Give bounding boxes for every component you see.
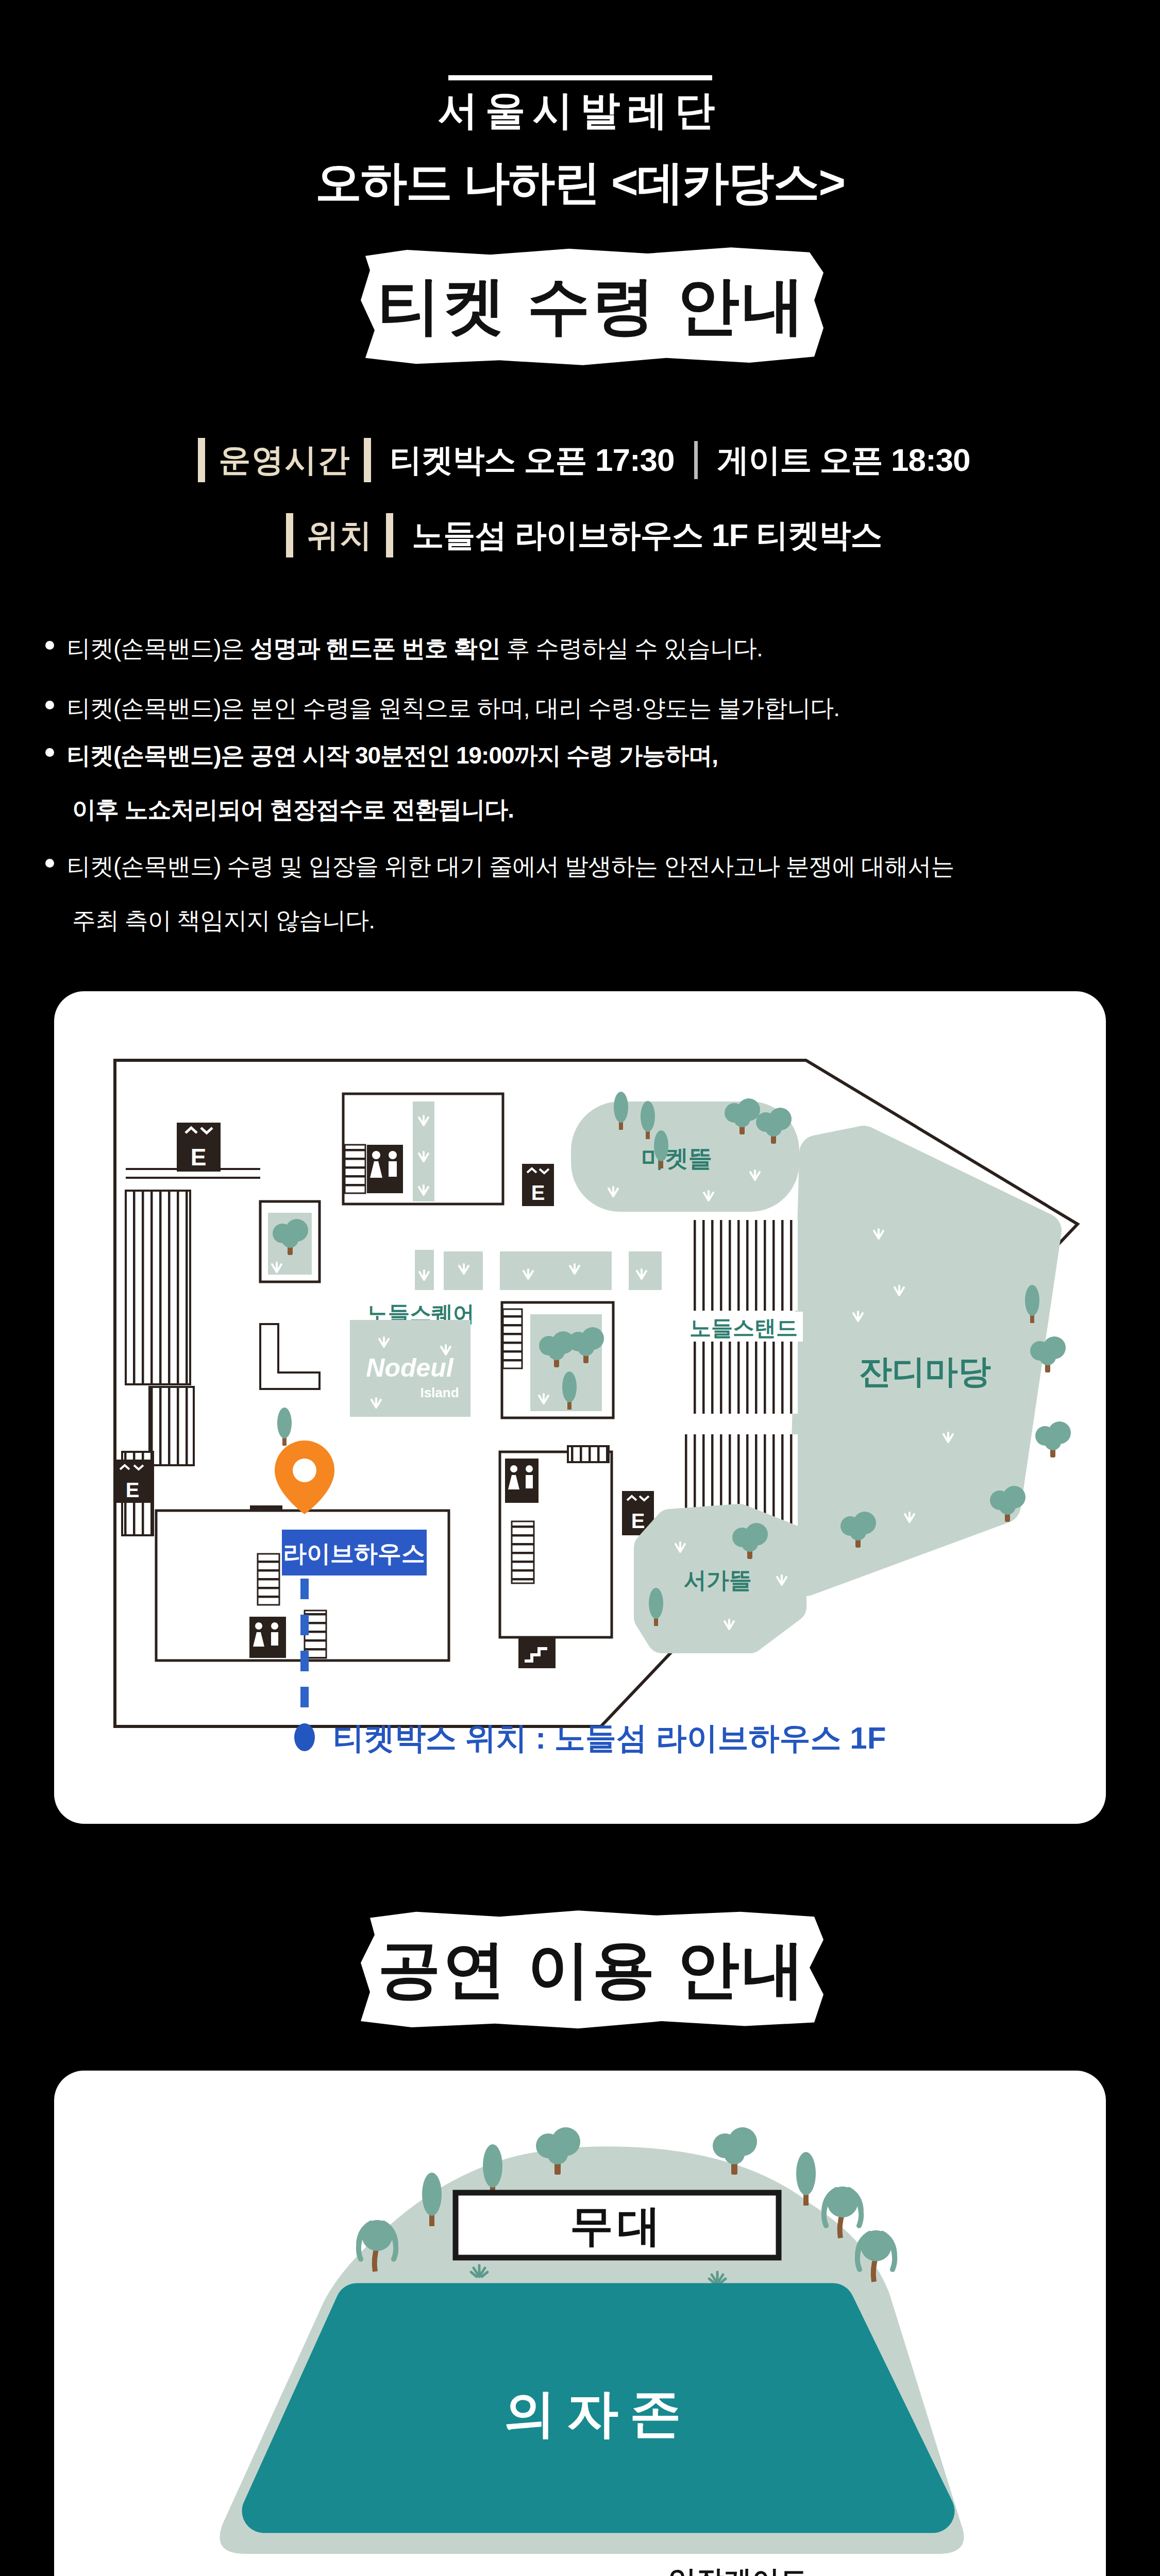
gate-label: 입장게이트 [668, 2565, 808, 2576]
building-outline [343, 1094, 503, 1204]
svg-text:Nodeul: Nodeul [366, 1353, 454, 1382]
location-value: 노들섬 라이브하우스 1F 티켓박스 [412, 514, 882, 557]
elevator-icon: E [177, 1123, 221, 1172]
stairs-strip [126, 1191, 190, 1384]
svg-text:무대: 무대 [570, 2201, 665, 2250]
ticketbox-open-time: 티켓박스 오픈 17:30 [390, 438, 674, 482]
note-text: 후 수령하실 수 있습니다. [500, 635, 763, 662]
divider-bar [364, 438, 371, 482]
hours-label: 운영시간 [218, 438, 350, 482]
chair-zone: 의자존 [264, 2305, 933, 2511]
operating-hours-row: 운영시간 티켓박스 오픈 17:30 게이트 오픈 18:30 [0, 438, 1160, 482]
map-label-lawn: 잔디마당 [859, 1353, 991, 1390]
logo-top-bar [448, 75, 712, 80]
toilet-icon [249, 1617, 286, 1658]
planter-box [260, 1201, 320, 1282]
bullet-dot [45, 701, 54, 709]
note-text: 이후 노쇼처리되어 현장접수로 전환됩니다. [72, 796, 514, 823]
svg-text:E: E [126, 1479, 140, 1501]
ticket-note-2: 티켓(손목밴드)은 본인 수령을 원칙으로 하며, 대리 수령·양도는 불가합니… [45, 692, 1159, 724]
value-separator [694, 441, 698, 479]
center-building [500, 1446, 612, 1637]
divider-bar [386, 513, 393, 557]
elevator-icon: E [114, 1460, 152, 1503]
market-garden-area: 마켓뜰 [571, 1092, 799, 1212]
bullet-dot [45, 859, 54, 868]
svg-text:Island: Island [420, 1385, 459, 1400]
gate-open-time: 게이트 오픈 18:30 [717, 438, 970, 482]
stage-box: 무대 [456, 2193, 779, 2258]
ticket-note-3-line2: 이후 노쇼처리되어 현장접수로 전환됩니다. [45, 794, 1160, 826]
note-text: 주최 측이 책임지지 않습니다. [72, 907, 375, 934]
map-label-seoga: 서가뜰 [684, 1567, 752, 1592]
map-label-stand: 노들스탠드 [690, 1316, 798, 1340]
divider-bar [286, 513, 293, 557]
elevator-icon: E [522, 1164, 554, 1206]
grove-box [502, 1302, 613, 1418]
event-notice-poster: 서울시발레단 오하드 나하린 <데카당스> 티켓 수령 안내 운영시간 티켓박스… [0, 0, 1160, 2576]
toilet-icon [505, 1459, 539, 1503]
svg-text:E: E [191, 1144, 207, 1171]
show-subtitle: 오하드 나하린 <데카당스> [0, 151, 1160, 214]
section-title-text: 공연 이용 안내 [378, 1928, 806, 2012]
nodeul-island-plaza: Nodeul Island [350, 1320, 470, 1417]
ticket-note-4-line2: 주최 측이 책임지지 않습니다. [45, 905, 1160, 937]
svg-text:의자존: 의자존 [504, 2384, 693, 2442]
note-text: 티켓(손목밴드) 수령 및 입장을 위한 대기 줄에서 발생하는 안전사고나 분… [67, 853, 954, 879]
svg-text:E: E [531, 1181, 545, 1204]
section-title-ticket-pickup: 티켓 수령 안내 [361, 246, 823, 366]
svg-text:E: E [631, 1510, 645, 1532]
nodeul-island-map: E E E E E [54, 991, 1106, 1824]
divider-bar [198, 438, 205, 482]
bullet-dot [45, 748, 54, 757]
bullet-dot [45, 641, 54, 650]
stairs-strip [149, 1387, 194, 1465]
stairs-icon [518, 1637, 556, 1668]
location-label: 위치 [307, 514, 373, 557]
ticket-note-1: 티켓(손목밴드)은 성명과 핸드폰 번호 확인 후 수령하실 수 있습니다. [45, 633, 1159, 665]
map-label-livehouse: 라이브하우스 [282, 1530, 427, 1575]
seoga-garden-area: 서가뜰 [649, 1519, 791, 1638]
map-label-market: 마켓뜰 [641, 1145, 712, 1172]
caption-dot [294, 1723, 315, 1751]
note-text: 티켓(손목밴드)은 [67, 635, 250, 662]
ballet-company-logo: 서울시발레단 [0, 84, 1160, 138]
ticket-note-3-line1: 티켓(손목밴드)은 공연 시작 30분전인 19:00까지 수령 가능하며, [45, 740, 1159, 772]
island-map-card: E E E E E [54, 991, 1106, 1824]
toilet-icon [367, 1145, 403, 1193]
venue-diagram: 무대 의자존 입장게이트 시팅존 [54, 2071, 1106, 2576]
section-title-text: 티켓 수령 안내 [378, 264, 806, 349]
note-text: 티켓(손목밴드)은 본인 수령을 원칙으로 하며, 대리 수령·양도는 불가합니… [67, 694, 839, 721]
location-row: 위치 노들섬 라이브하우스 1F 티켓박스 [0, 513, 1160, 557]
note-text-bold: 성명과 핸드폰 번호 확인 [250, 635, 500, 662]
ticket-note-4-line1: 티켓(손목밴드) 수령 및 입장을 위한 대기 줄에서 발생하는 안전사고나 분… [45, 851, 1159, 883]
map-caption: 티켓박스 위치 : 노들섬 라이브하우스 1F [333, 1721, 886, 1755]
venue-guide-card: 무대 의자존 입장게이트 시팅존 [54, 2071, 1106, 2576]
note-text: 티켓(손목밴드)은 공연 시작 30분전인 19:00까지 수령 가능하며, [67, 742, 718, 769]
svg-text:라이브하우스: 라이브하우스 [283, 1540, 425, 1567]
section-title-usage: 공연 이용 안내 [361, 1909, 823, 2031]
